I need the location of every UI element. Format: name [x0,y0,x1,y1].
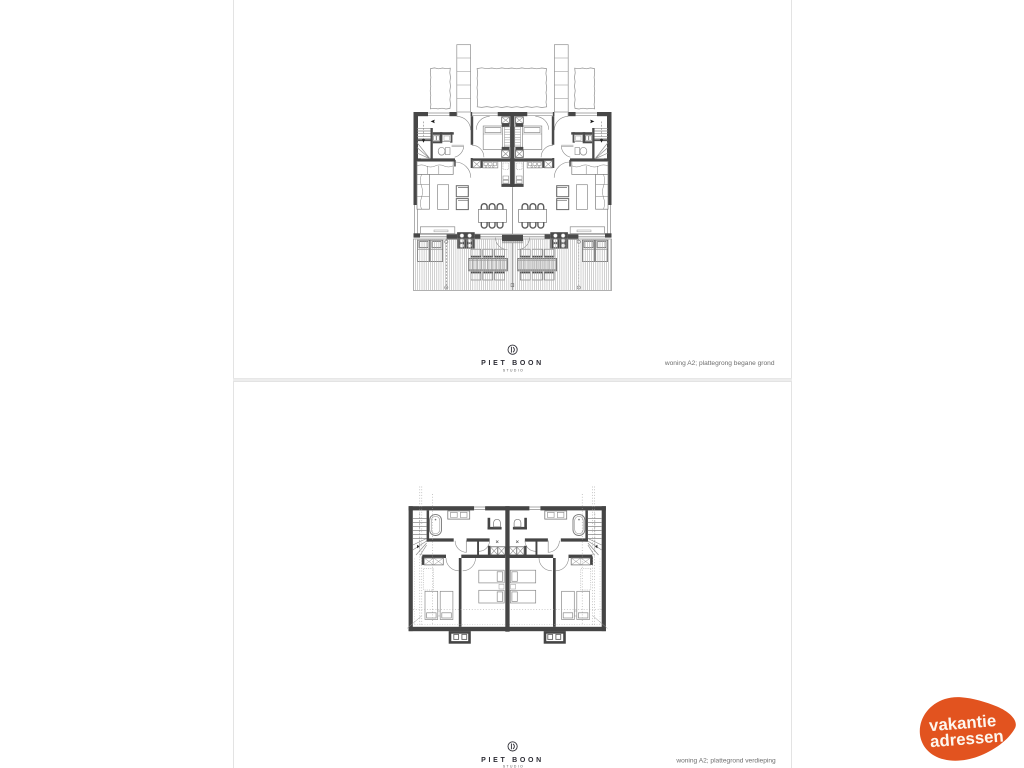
svg-text:woning A2; plattegrong begane: woning A2; plattegrong begane grond [664,360,775,367]
svg-text:woning A2; plattegrond verdiep: woning A2; plattegrond verdieping [675,757,776,764]
svg-text:STUDIO: STUDIO [503,368,524,372]
svg-text:STUDIO: STUDIO [503,765,524,768]
svg-text:PIET BOON: PIET BOON [481,757,544,764]
svg-text:PIET BOON: PIET BOON [481,360,544,367]
